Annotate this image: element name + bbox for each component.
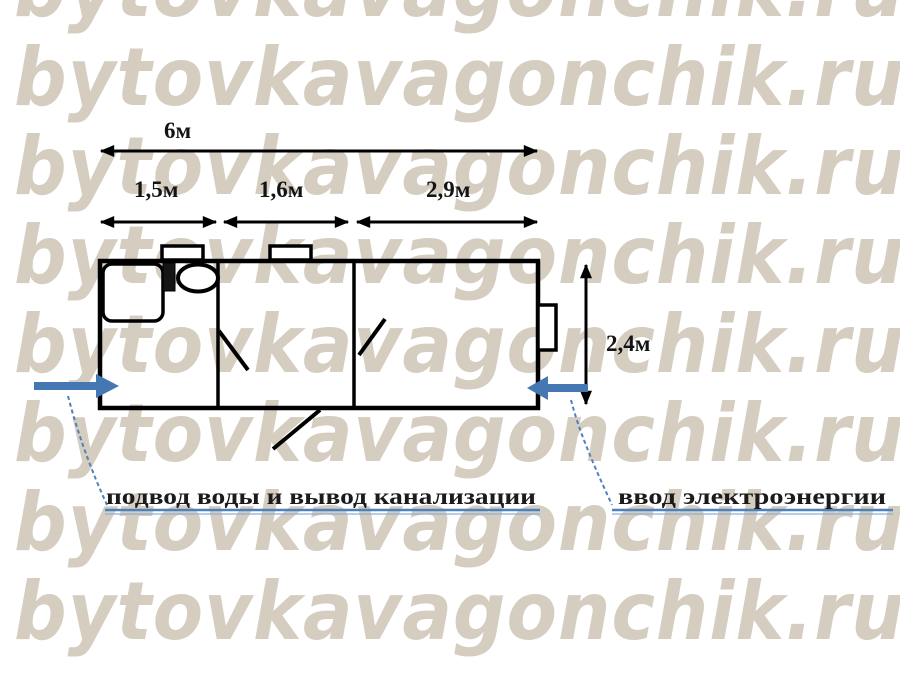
floor-plan-page: bytovkavagonchik.ru bytovkavagonchik.ru … (0, 0, 900, 675)
electric-leader-line (571, 400, 612, 505)
section3-dim-label: 2,9м (426, 177, 470, 202)
entrance-door-swing (273, 410, 320, 449)
window-marker-2 (270, 246, 311, 260)
floor-plan-drawing: 6м 1,5м 1,6м 2,9м 2,4м (0, 0, 900, 675)
total-length-dim-label: 6м (164, 118, 191, 143)
shower-tray (103, 264, 163, 321)
door-swing-room3 (359, 319, 385, 355)
water-label: подвод воды и вывод канализации (106, 484, 536, 509)
section1-dim-label: 1,5м (134, 177, 178, 202)
height-dim-label: 2,4м (606, 331, 650, 356)
toilet (178, 265, 218, 292)
water-inlet-arrow-icon (34, 374, 119, 398)
electricity-label: ввод электроэнергии (618, 484, 886, 509)
door-swing-room2 (219, 331, 248, 370)
window-marker-1 (162, 246, 203, 260)
water-leader-line (68, 396, 107, 505)
electrical-panel (538, 305, 556, 350)
section2-dim-label: 1,6м (259, 177, 303, 202)
toilet-cistern (163, 263, 175, 291)
